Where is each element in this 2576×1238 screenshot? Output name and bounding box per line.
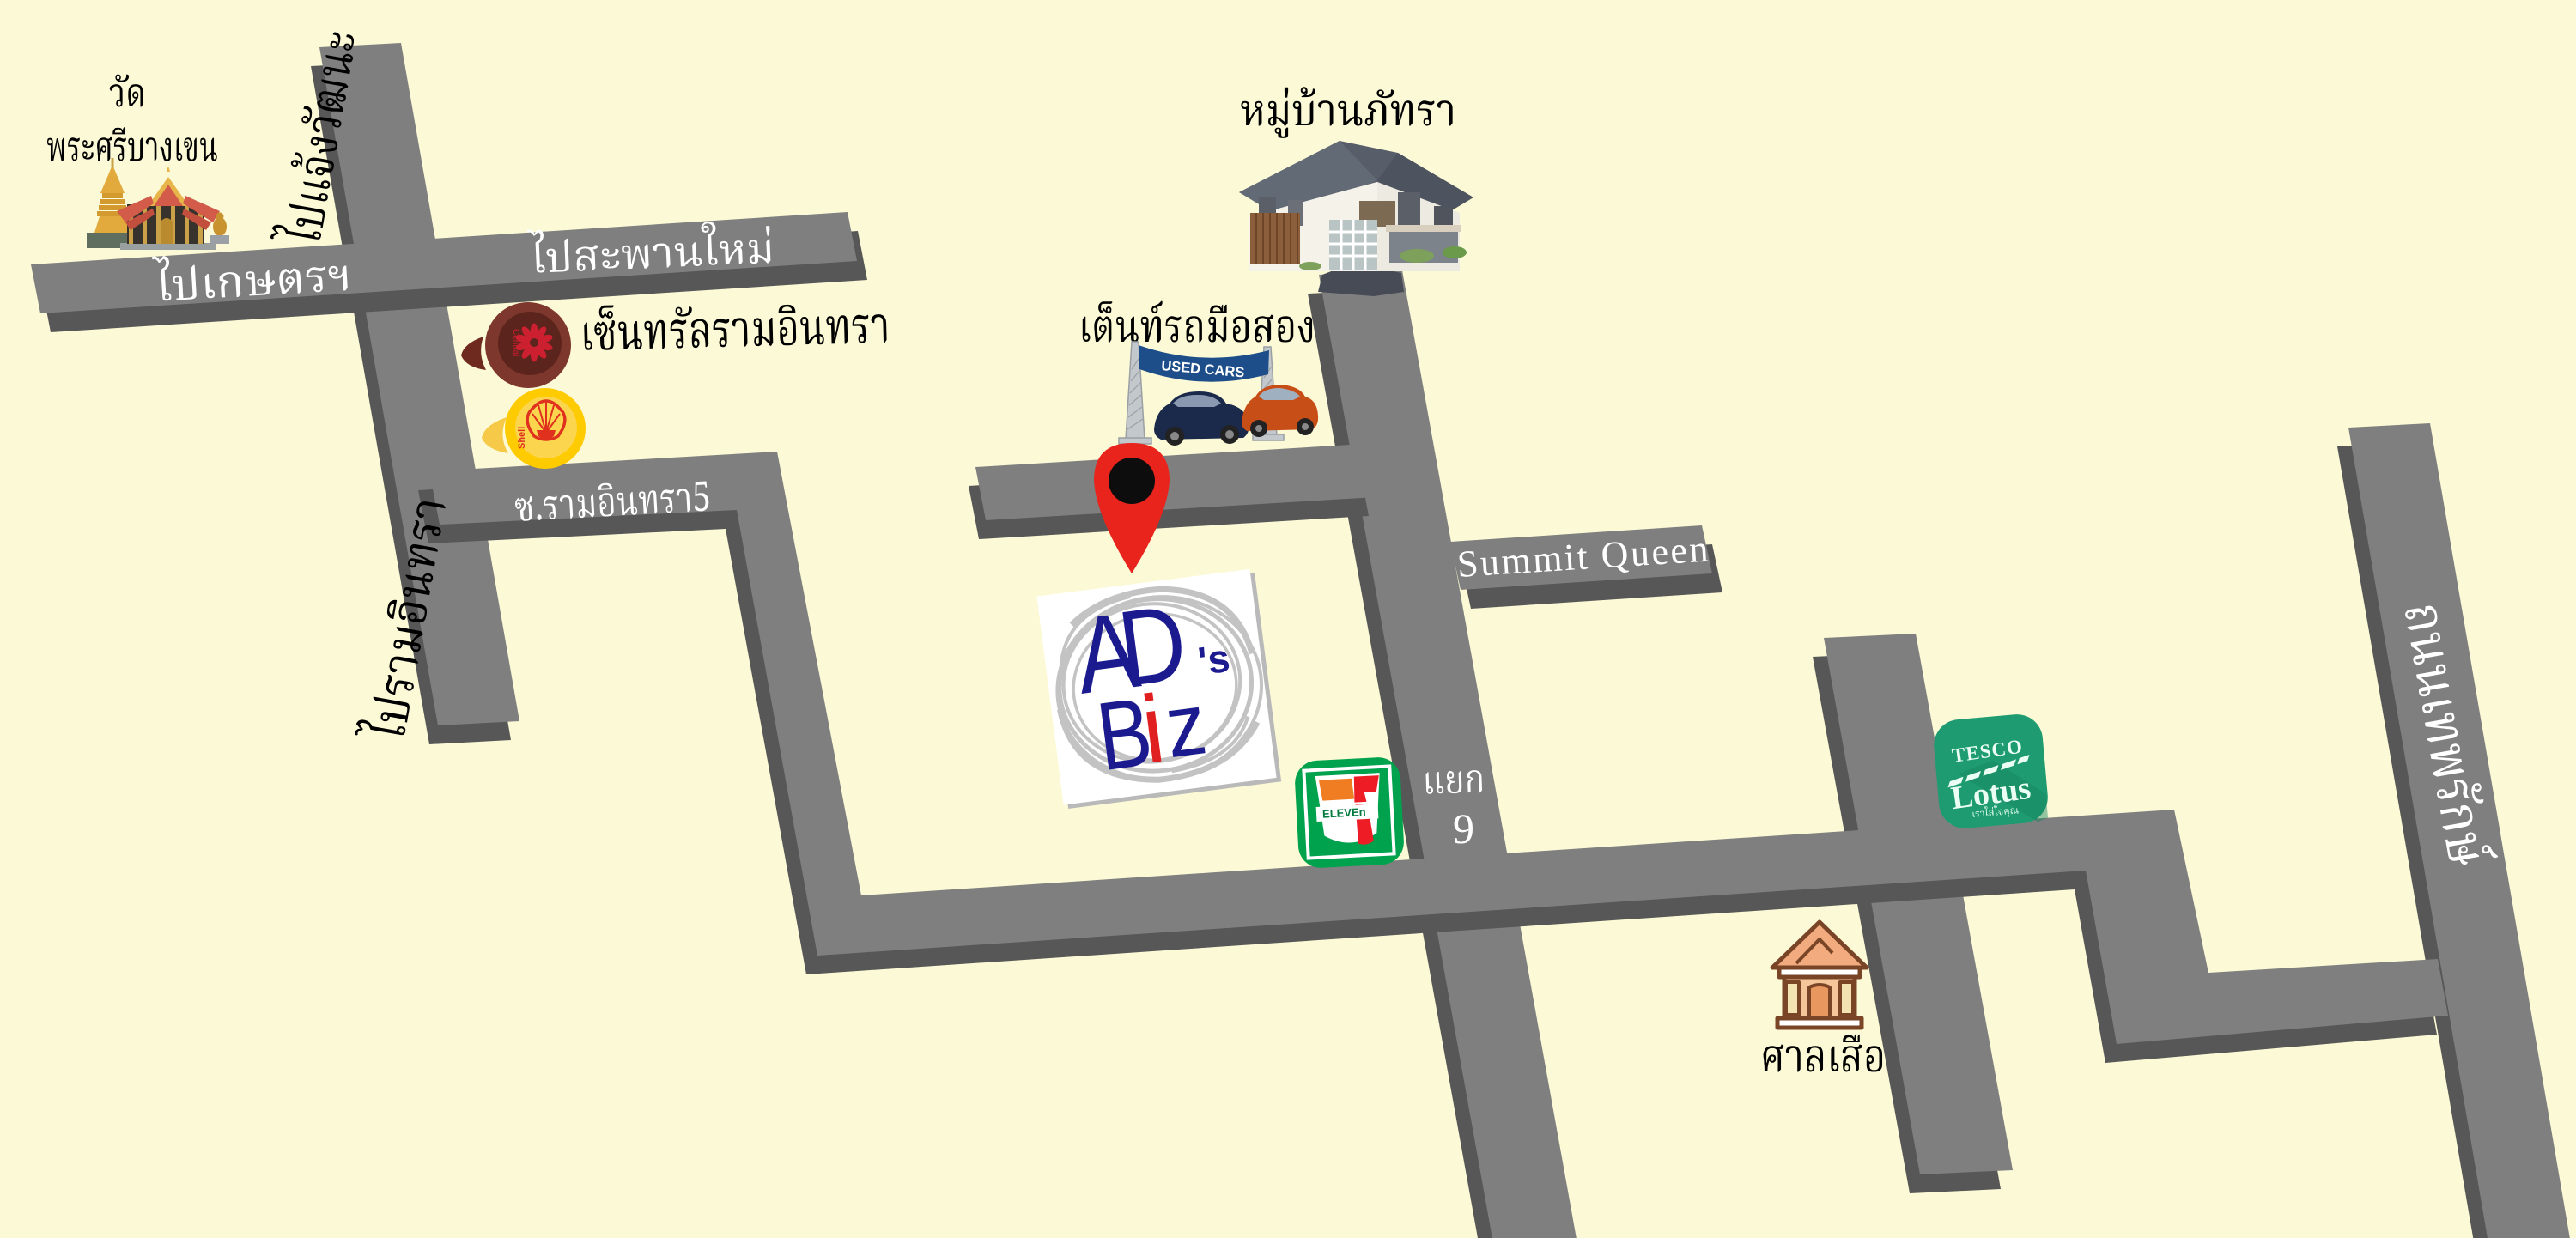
svg-text:Shell: Shell — [517, 427, 527, 449]
svg-text:ELEVEn: ELEVEn — [1322, 805, 1366, 821]
svg-text:9: 9 — [1453, 804, 1474, 853]
svg-text:'s: 's — [1195, 635, 1232, 683]
svg-text:Central: Central — [511, 329, 520, 356]
